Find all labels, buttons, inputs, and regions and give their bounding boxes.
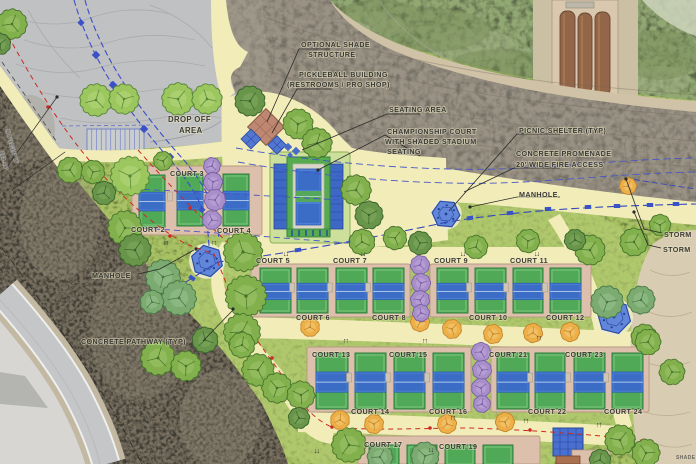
svg-text:COURT 16: COURT 16 [429, 407, 467, 416]
svg-text:↑↑: ↑↑ [523, 418, 529, 425]
svg-text:OPTIONAL SHADE: OPTIONAL SHADE [301, 40, 370, 49]
svg-text:COURT 10: COURT 10 [469, 313, 507, 322]
svg-text:COURT 6: COURT 6 [296, 313, 330, 322]
svg-text:COURT 12: COURT 12 [546, 313, 584, 322]
svg-text:COURT 13: COURT 13 [312, 350, 350, 359]
svg-text:STORM: STORM [663, 245, 691, 254]
svg-text:SEATING: SEATING [387, 147, 421, 156]
svg-text:(RESTROOMS / PRO SHOP): (RESTROOMS / PRO SHOP) [287, 80, 390, 89]
svg-text:DROP OFF: DROP OFF [168, 115, 211, 124]
svg-text:CONCRETE PATHWAY (TYP): CONCRETE PATHWAY (TYP) [81, 337, 186, 346]
svg-text:COURT 23: COURT 23 [565, 350, 603, 359]
svg-text:COURT 5: COURT 5 [256, 256, 290, 265]
svg-text:↑↑: ↑↑ [536, 335, 542, 342]
svg-text:COURT 24: COURT 24 [604, 407, 642, 416]
svg-text:↑↑: ↑↑ [211, 240, 217, 247]
svg-text:COURT 15: COURT 15 [389, 350, 427, 359]
svg-text:COURT 7: COURT 7 [333, 256, 367, 265]
svg-text:COURT 22: COURT 22 [528, 407, 566, 416]
svg-text:↑↑: ↑↑ [343, 338, 349, 345]
svg-text:COURT 3: COURT 3 [170, 169, 204, 178]
svg-text:SHADE: SHADE [676, 455, 696, 461]
svg-text:MANHOLE: MANHOLE [519, 190, 558, 199]
svg-text:20' WIDE FIRE ACCESS: 20' WIDE FIRE ACCESS [516, 160, 604, 169]
svg-text:COURT 19: COURT 19 [439, 442, 477, 451]
svg-text:COURT 21: COURT 21 [489, 350, 527, 359]
svg-text:↓↓: ↓↓ [428, 447, 434, 454]
svg-text:↑↑: ↑↑ [450, 415, 456, 422]
svg-text:SEATING AREA: SEATING AREA [389, 105, 447, 114]
svg-text:PICNIC SHELTER (TYP): PICNIC SHELTER (TYP) [519, 126, 606, 135]
svg-text:COURT 8: COURT 8 [372, 313, 406, 322]
svg-text:↑↑: ↑↑ [422, 338, 428, 345]
svg-text:COURT 9: COURT 9 [434, 256, 468, 265]
svg-text:CONCRETE PROMENADE: CONCRETE PROMENADE [516, 149, 611, 158]
svg-text:WITH SHADED STADIUM: WITH SHADED STADIUM [385, 137, 477, 146]
svg-text:PICKLEBALL BUILDING: PICKLEBALL BUILDING [299, 70, 388, 79]
svg-text:COURT 11: COURT 11 [510, 256, 548, 265]
svg-text:COURT 4: COURT 4 [217, 226, 251, 235]
svg-text:STRUCTURE: STRUCTURE [308, 50, 355, 59]
svg-text:↓↓: ↓↓ [314, 448, 320, 455]
svg-text:STORM: STORM [664, 230, 692, 239]
svg-text:COURT 2: COURT 2 [131, 225, 165, 234]
svg-text:CHAMPIONSHIP COURT: CHAMPIONSHIP COURT [387, 127, 477, 136]
svg-text:COURT 17: COURT 17 [364, 440, 402, 449]
svg-text:MANHOLE: MANHOLE [92, 271, 131, 280]
svg-text:COURT 14: COURT 14 [351, 407, 389, 416]
svg-text:AREA: AREA [179, 126, 203, 135]
svg-text:↑↑: ↑↑ [596, 422, 602, 429]
svg-text:↑↑: ↑↑ [163, 240, 169, 247]
